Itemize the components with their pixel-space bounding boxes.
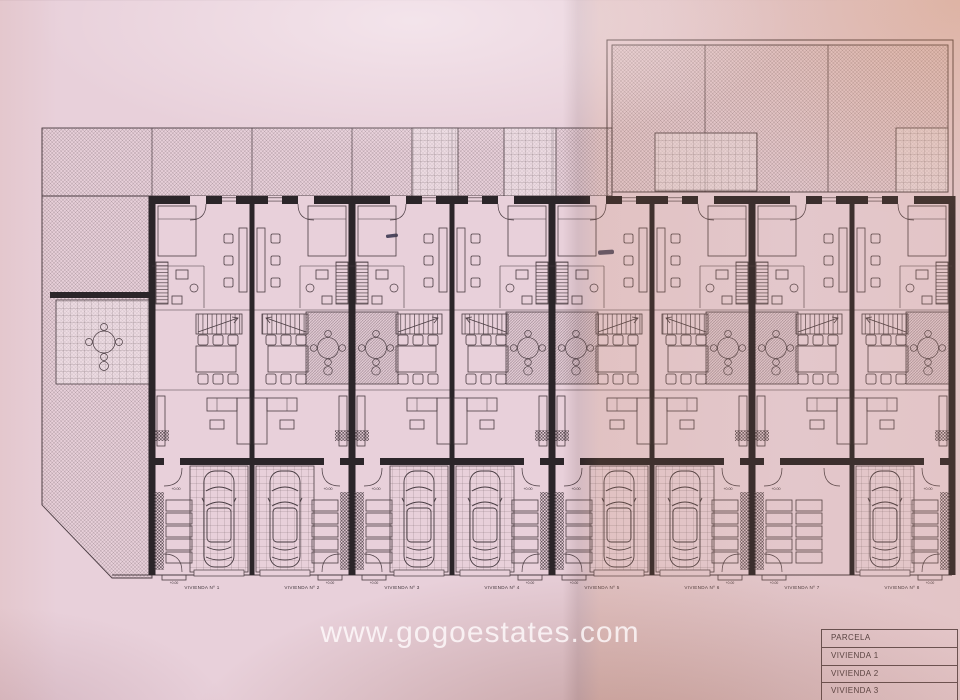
legend-row-vivienda-3: VIVIENDA 3 xyxy=(822,682,957,700)
level-mark: +0.00 xyxy=(171,487,180,491)
unit-label: VIVIENDA Nº 4 xyxy=(484,585,519,590)
level-mark: +0.00 xyxy=(723,487,732,491)
level-mark: +0.00 xyxy=(923,487,932,491)
unit-label: VIVIENDA Nº 3 xyxy=(384,585,419,590)
floor-plan-photo: VIVIENDA Nº 1+0.00+0.00VIVIENDA Nº 2+0.0… xyxy=(0,0,960,700)
level-mark: +0.00 xyxy=(726,581,735,585)
level-mark: +0.00 xyxy=(523,487,532,491)
level-mark: +0.00 xyxy=(770,581,779,585)
level-mark: +0.00 xyxy=(170,581,179,585)
level-mark: +0.00 xyxy=(323,487,332,491)
level-mark: +0.00 xyxy=(771,487,780,491)
level-mark: +0.00 xyxy=(371,487,380,491)
unit-label: VIVIENDA Nº 5 xyxy=(584,585,619,590)
level-mark: +0.00 xyxy=(571,487,580,491)
legend-row-vivienda-2: VIVIENDA 2 xyxy=(822,665,957,683)
level-mark: +0.00 xyxy=(326,581,335,585)
unit-label: VIVIENDA Nº 6 xyxy=(684,585,719,590)
legend-row-parcela: PARCELA xyxy=(822,630,957,647)
legend-row-vivienda-1: VIVIENDA 1 xyxy=(822,647,957,665)
unit-label: VIVIENDA Nº 8 xyxy=(884,585,919,590)
level-mark: +0.00 xyxy=(526,581,535,585)
level-mark: +0.00 xyxy=(926,581,935,585)
legend-table: PARCELA VIVIENDA 1 VIVIENDA 2 VIVIENDA 3 xyxy=(821,629,958,700)
floor-plan-drawing: VIVIENDA Nº 1+0.00+0.00VIVIENDA Nº 2+0.0… xyxy=(0,0,960,700)
level-mark: +0.00 xyxy=(570,581,579,585)
unit-label: VIVIENDA Nº 1 xyxy=(184,585,219,590)
unit-label: VIVIENDA Nº 2 xyxy=(284,585,319,590)
unit-label: VIVIENDA Nº 7 xyxy=(784,585,819,590)
level-mark: +0.00 xyxy=(370,581,379,585)
